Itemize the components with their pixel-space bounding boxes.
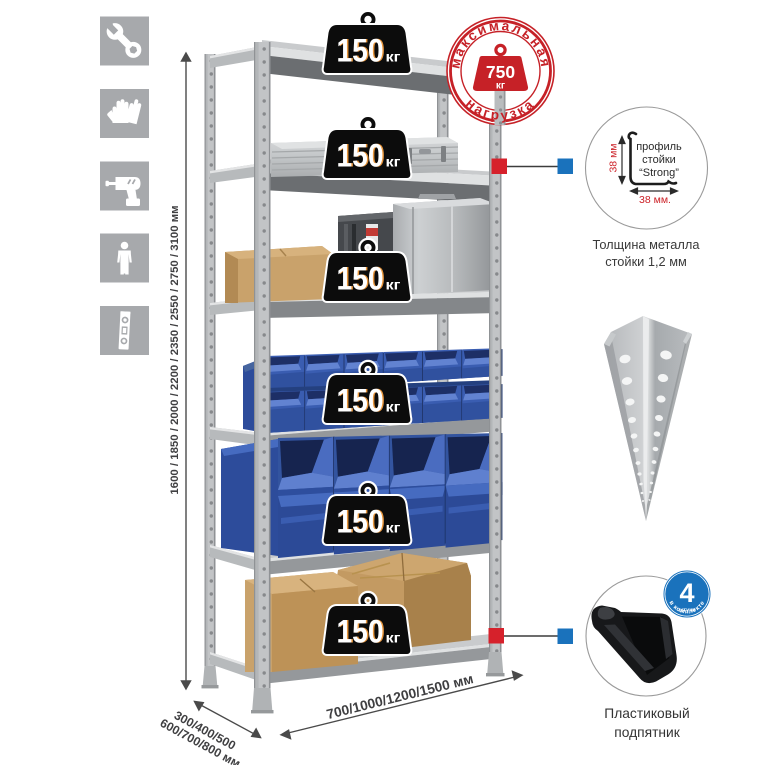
svg-text:стойки 1,2 мм: стойки 1,2 мм [605,254,687,269]
svg-text:38 мм.: 38 мм. [639,194,671,206]
svg-text:кг: кг [386,521,401,536]
svg-text:кг: кг [496,81,505,92]
svg-text:Толщина металла: Толщина металла [593,237,701,252]
svg-text:4: 4 [679,578,694,608]
svg-text:кг: кг [386,278,401,293]
svg-text:38 мм: 38 мм [608,143,620,172]
svg-text:750: 750 [486,62,515,82]
svg-text:1600 / 1850 / 2000 / 2200 / 23: 1600 / 1850 / 2000 / 2200 / 2350 / 2550 … [169,205,181,494]
svg-text:стойки: стойки [642,154,676,166]
svg-text:150: 150 [337,383,384,419]
svg-text:кг: кг [386,155,401,170]
svg-text:профиль: профиль [636,141,682,153]
svg-text:штуки: штуки [679,608,696,614]
svg-text:Пластиковый: Пластиковый [604,706,689,721]
svg-text:150: 150 [337,504,384,540]
svg-text:кг: кг [386,50,401,65]
svg-text:150: 150 [337,33,384,69]
svg-text:“Strong”: “Strong” [639,167,679,179]
svg-text:150: 150 [337,261,384,297]
svg-text:кг: кг [386,631,401,646]
svg-text:подпятник: подпятник [614,725,680,740]
svg-text:150: 150 [337,614,384,650]
svg-text:150: 150 [337,138,384,174]
svg-text:кг: кг [386,400,401,415]
